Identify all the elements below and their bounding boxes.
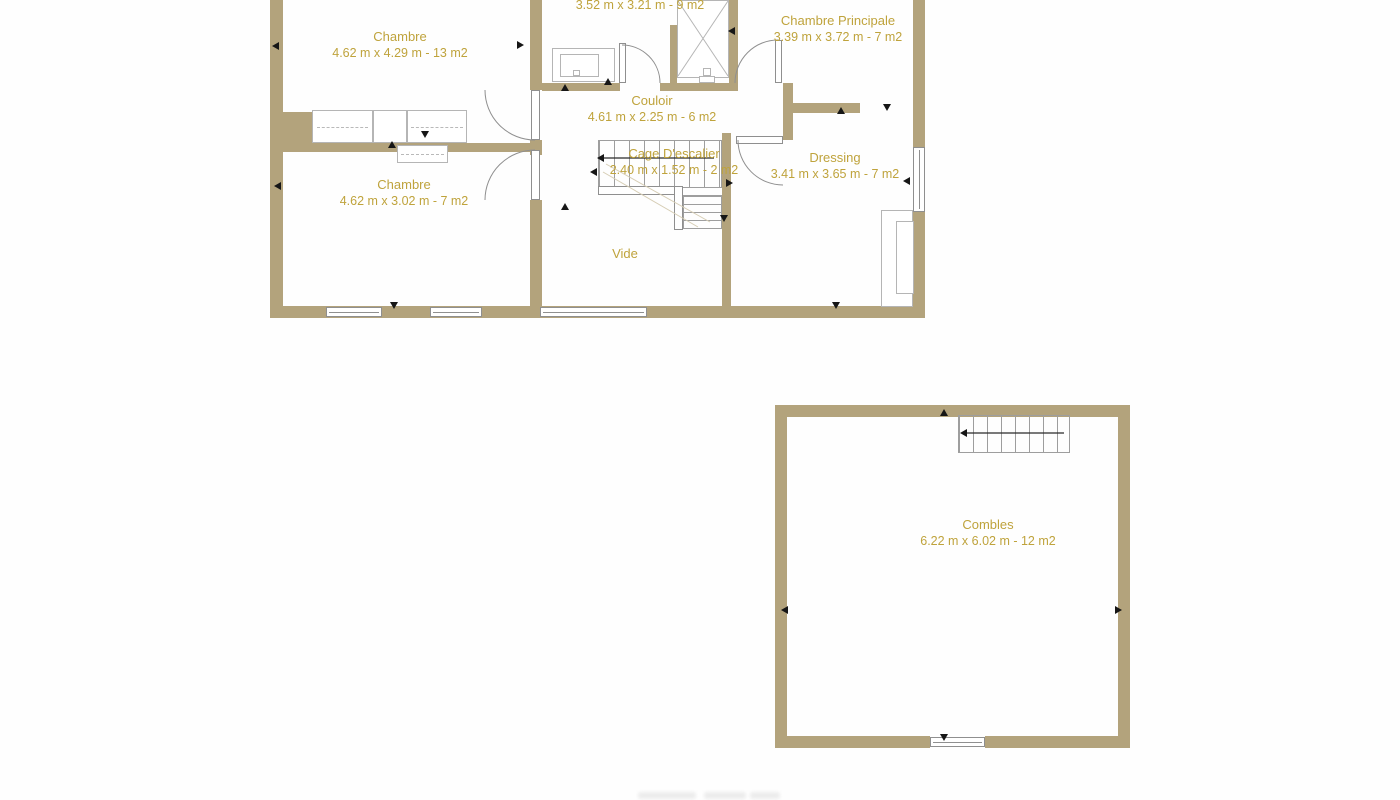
cutoff-watermark [750, 792, 780, 799]
room-label-chambre-1: Chambre 4.62 m x 4.29 m - 13 m2 [300, 29, 500, 61]
cutoff-watermark [704, 792, 746, 799]
window [430, 307, 482, 317]
room-dims: 4.62 m x 3.02 m - 7 m2 [304, 193, 504, 209]
wall [670, 25, 677, 83]
direction-arrow-icon [726, 179, 733, 187]
wall [729, 0, 738, 91]
room-label-dressing: Dressing 3.41 m x 3.65 m - 7 m2 [735, 150, 935, 182]
bathroom-sink-tap [573, 70, 580, 76]
door-swing [485, 90, 535, 140]
door-leaf [619, 43, 626, 83]
direction-arrow-icon [421, 131, 429, 138]
wall [913, 212, 925, 306]
wall [530, 0, 542, 90]
direction-arrow-icon [388, 141, 396, 148]
direction-arrow-icon [781, 606, 788, 614]
room-name: Chambre Principale [738, 13, 938, 29]
wall [660, 83, 729, 91]
room-dims: 3.52 m x 3.21 m - 9 m2 [540, 0, 740, 13]
door-swing [622, 45, 660, 83]
door-swing [735, 40, 778, 83]
direction-arrow-icon [561, 203, 569, 210]
wall [775, 736, 930, 748]
direction-arrow-icon [272, 42, 279, 50]
room-dims: 3.41 m x 3.65 m - 7 m2 [735, 166, 935, 182]
stair-railing [598, 186, 683, 195]
direction-arrow-icon [561, 84, 569, 91]
wall [530, 200, 542, 306]
closet [896, 221, 914, 294]
window [326, 307, 382, 317]
direction-arrow-icon [604, 78, 612, 85]
room-dims: 6.22 m x 6.02 m - 12 m2 [888, 533, 1088, 549]
wall [775, 405, 1130, 417]
direction-arrow-icon [274, 182, 281, 190]
direction-arrow-icon [960, 429, 967, 437]
room-label-salle-deau: 3.52 m x 3.21 m - 9 m2 [540, 0, 740, 13]
room-name: Couloir [552, 93, 752, 109]
wall-chimney-bump [283, 112, 313, 143]
room-name: Vide [545, 246, 705, 262]
room-label-vide: Vide [545, 246, 705, 262]
door-leaf [775, 40, 782, 83]
door-leaf [736, 136, 783, 144]
floor-plan-canvas: 3.52 m x 3.21 m - 9 m2 Chambre 4.62 m x … [0, 0, 1400, 800]
room-label-chambre-2: Chambre 4.62 m x 3.02 m - 7 m2 [304, 177, 504, 209]
door-leaf [531, 150, 540, 200]
room-label-combles: Combles 6.22 m x 6.02 m - 12 m2 [888, 517, 1088, 549]
stair-railing [674, 186, 683, 230]
room-name: Dressing [735, 150, 935, 166]
wall [1118, 405, 1130, 748]
direction-arrow-icon [883, 104, 891, 111]
direction-arrow-icon [517, 41, 524, 49]
room-dims: 4.62 m x 4.29 m - 13 m2 [300, 45, 500, 61]
wardrobe [312, 110, 373, 143]
direction-arrow-icon [720, 215, 728, 222]
stair-treads [683, 195, 722, 229]
wardrobe [407, 110, 467, 143]
cutoff-watermark [638, 792, 696, 799]
wall [985, 736, 1130, 748]
direction-arrow-icon [832, 302, 840, 309]
direction-arrow-icon [390, 302, 398, 309]
room-dims: 4.61 m x 2.25 m - 6 m2 [552, 109, 752, 125]
window [540, 307, 647, 317]
stair-treads [958, 415, 1070, 453]
direction-arrow-icon [940, 734, 948, 741]
wardrobe [373, 110, 407, 143]
direction-arrow-icon [1115, 606, 1122, 614]
direction-arrow-icon [837, 107, 845, 114]
door-leaf [531, 90, 540, 140]
room-label-couloir: Couloir 4.61 m x 2.25 m - 6 m2 [552, 93, 752, 125]
shelf [397, 145, 448, 163]
room-name: Chambre [304, 177, 504, 193]
direction-arrow-icon [728, 27, 735, 35]
direction-arrow-icon [940, 409, 948, 416]
window [930, 737, 985, 747]
room-label-chambre-principale: Chambre Principale 3.39 m x 3.72 m - 7 m… [738, 13, 938, 45]
wall [775, 405, 787, 748]
wall [783, 103, 860, 113]
room-dims: 3.39 m x 3.72 m - 7 m2 [738, 29, 938, 45]
room-name: Combles [888, 517, 1088, 533]
toilet [703, 68, 711, 76]
toilet [699, 76, 715, 83]
room-name: Chambre [300, 29, 500, 45]
